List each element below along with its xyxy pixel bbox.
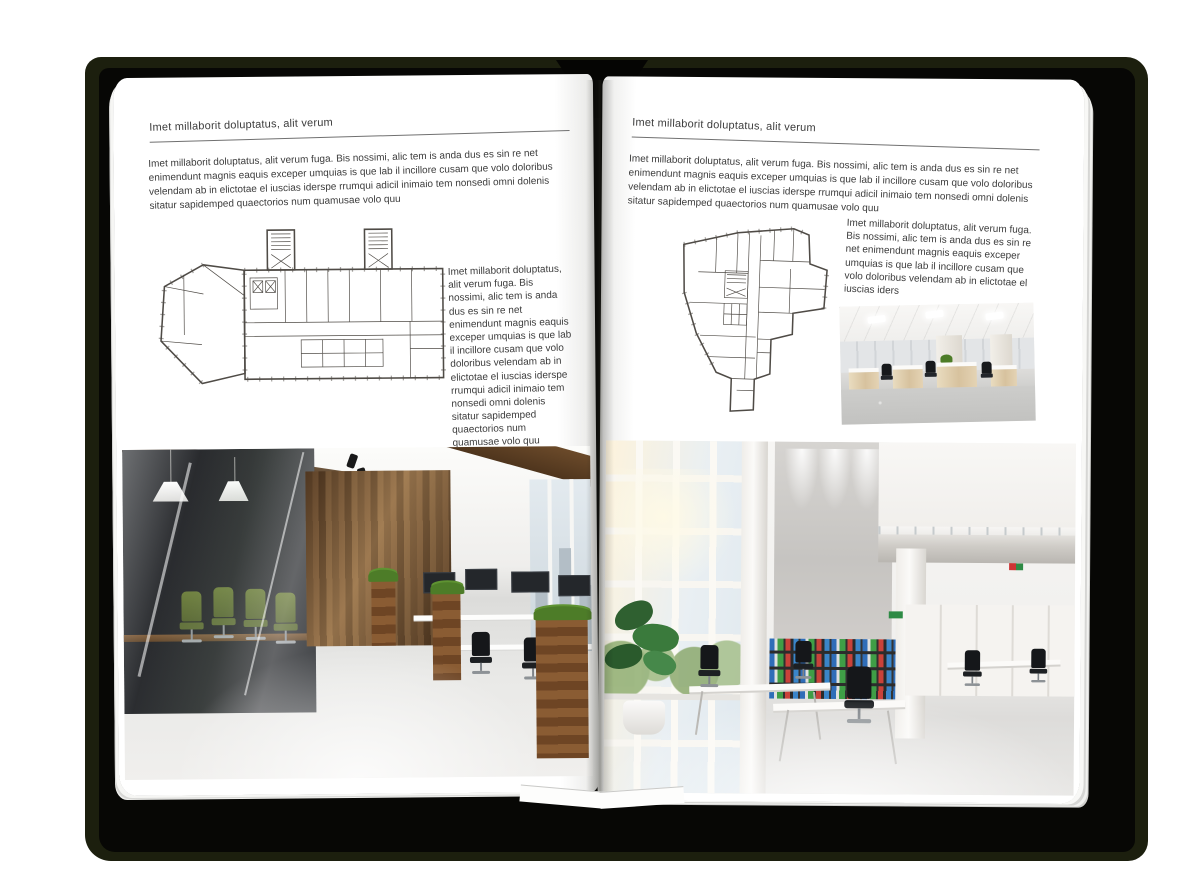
- black-office-chair: [963, 650, 982, 688]
- sun-glare: [614, 469, 737, 590]
- right-page-header-rule: [632, 137, 1040, 151]
- carpet-floor: [841, 385, 1036, 424]
- right-page-side-column: Imet millaborit doluptatus, alit verum f…: [844, 217, 1045, 304]
- left-floor-plan-drawing: [154, 223, 448, 412]
- computer-monitor: [465, 569, 497, 590]
- right-page: Imet millaborit doluptatus, alit verum I…: [597, 76, 1084, 803]
- magazine-spread-mockup: Imet millaborit doluptatus, alit verum I…: [0, 0, 1200, 891]
- small-office-photo: [839, 303, 1035, 425]
- white-cabinet-wall: [905, 604, 1075, 697]
- black-office-chair: [698, 645, 720, 689]
- left-page: Imet millaborit doluptatus, alit verum I…: [113, 74, 599, 796]
- desk-plant: [940, 354, 952, 362]
- left-page-side-column: Imet millaborit doluptatus, alit verum f…: [448, 262, 575, 450]
- mezzanine-glass-rail: [878, 527, 1075, 536]
- black-office-chair: [924, 361, 936, 381]
- black-office-chair: [881, 364, 893, 384]
- window-sill: [604, 694, 745, 701]
- planter-grass: [430, 582, 464, 594]
- wood-planter: [371, 580, 396, 646]
- safety-sign: [1009, 563, 1023, 570]
- floor-highlight: [171, 644, 547, 779]
- right-floor-plan: [644, 214, 843, 424]
- floor-highlight: [604, 701, 1075, 796]
- dark-office-photo: [122, 446, 593, 780]
- black-office-chair: [981, 362, 993, 382]
- planter-grass: [533, 606, 591, 621]
- downlight-glow: [784, 449, 818, 509]
- bright-office-photo: [604, 440, 1076, 795]
- binder-bookshelf: [769, 639, 896, 700]
- right-page-header: Imet millaborit doluptatus, alit verum: [632, 117, 816, 135]
- black-office-chair: [1030, 648, 1048, 683]
- left-floor-plan: [154, 223, 448, 412]
- black-office-chair: [793, 641, 813, 681]
- mezzanine-balcony: [878, 442, 1076, 563]
- planter-grass: [368, 570, 398, 582]
- exit-sign: [889, 611, 903, 618]
- downlight-glow: [817, 449, 851, 509]
- left-page-intro-paragraph: Imet millaborit doluptatus, alit verum f…: [148, 146, 567, 214]
- spine-shadow: [586, 80, 614, 794]
- right-floor-plan-drawing: [644, 214, 843, 424]
- computer-monitor: [512, 572, 550, 593]
- right-page-intro-paragraph: Imet millaborit doluptatus, alit verum f…: [628, 152, 1046, 221]
- left-page-header: Imet millaborit doluptatus, alit verum: [149, 117, 333, 134]
